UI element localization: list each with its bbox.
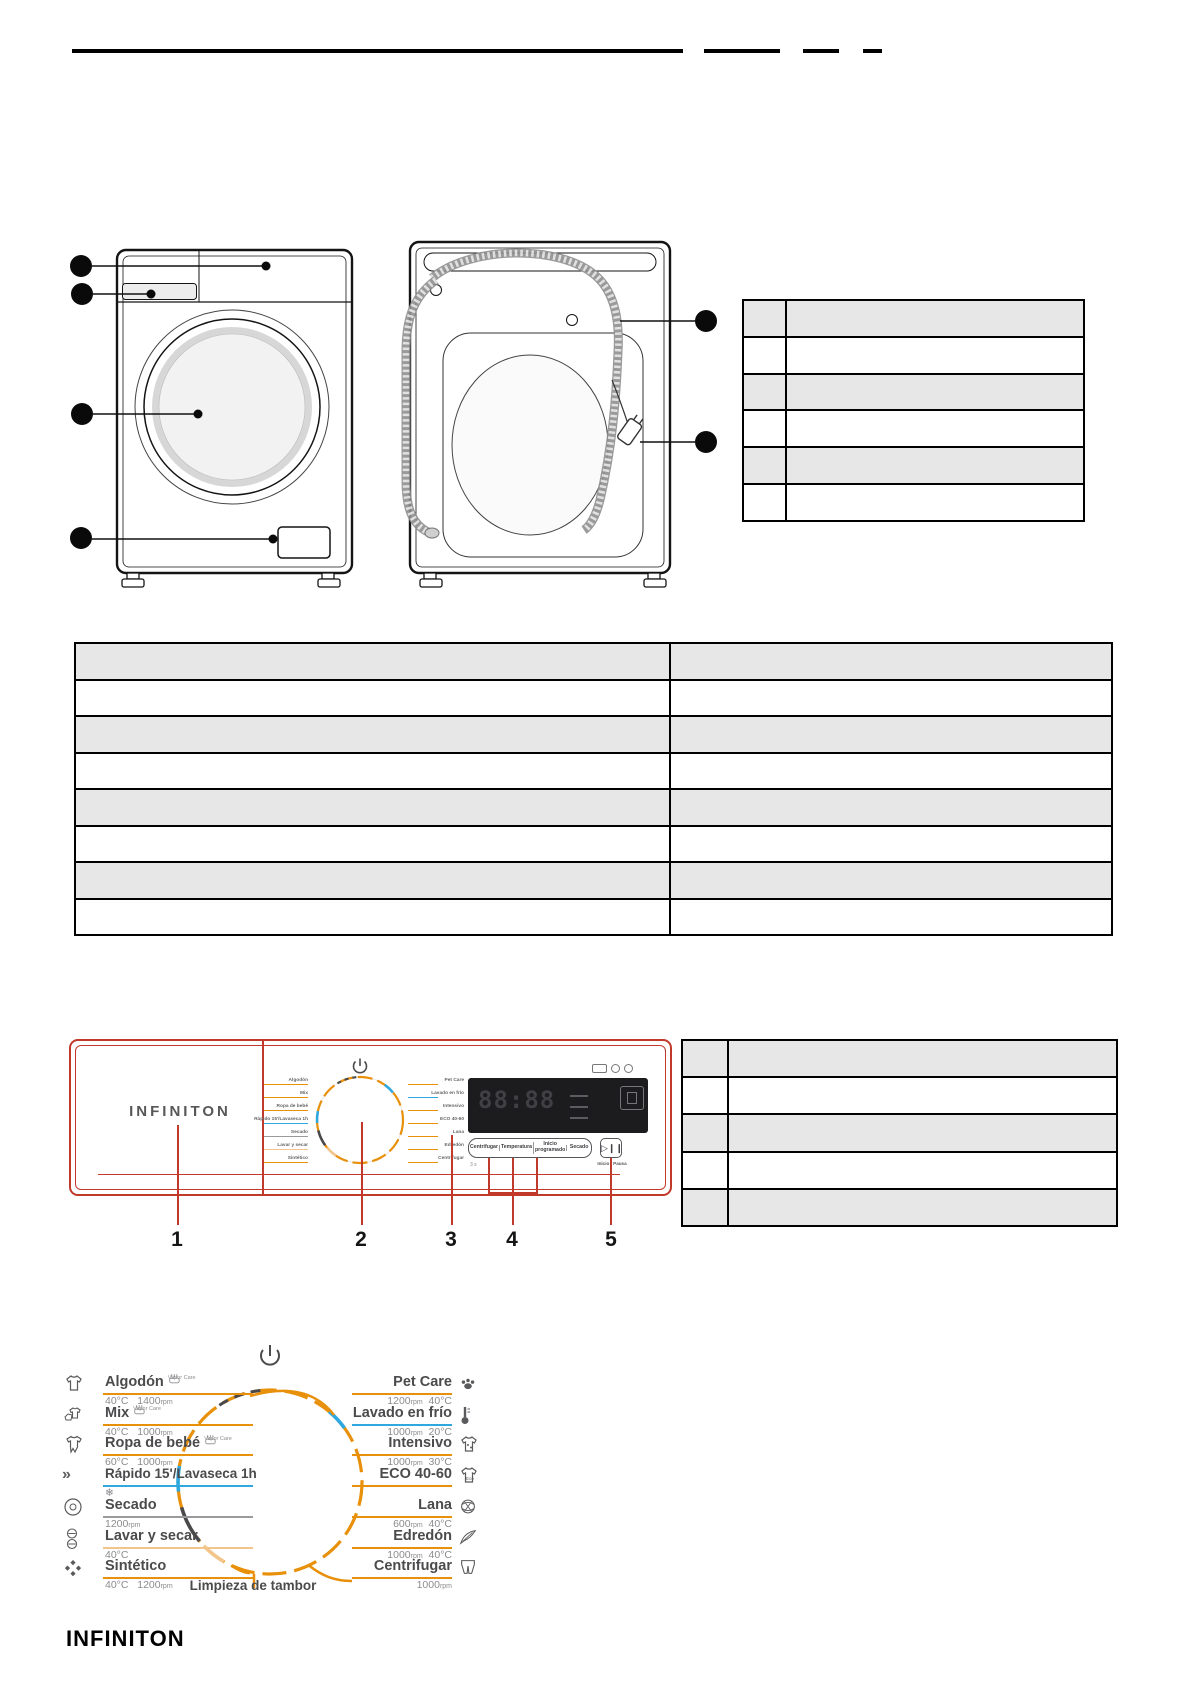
- back-view-parts-table: [742, 299, 1085, 522]
- table-row: [744, 301, 1083, 336]
- leader-line-4c: [536, 1158, 538, 1192]
- callout-bullet: [71, 283, 93, 305]
- spin-button[interactable]: Centrifugar: [469, 1145, 499, 1151]
- detergent-drawer: [123, 284, 197, 300]
- power-icon: [261, 1345, 279, 1365]
- panel-dial-label: ECO 40-60: [408, 1117, 464, 1130]
- panel-callout-1: 1: [164, 1228, 190, 1252]
- power-icon: [354, 1059, 367, 1073]
- program-rapido: » Rápido 15'/Lavaseca 1h ❄: [60, 1466, 260, 1496]
- table-row: [744, 409, 1083, 446]
- program-mix: Mix Vapor Care 40°C 1000rpm: [60, 1405, 260, 1435]
- table-row: [76, 788, 1111, 825]
- header-rule-3: [803, 49, 839, 53]
- footer-brand-logo: INFINITON: [66, 1626, 185, 1652]
- leader-line-1: [177, 1125, 179, 1225]
- machine-diagrams: [40, 230, 740, 600]
- program-lavar-y-secar: Lavar y secar 40°C: [60, 1528, 260, 1558]
- indicator-icon: [570, 1095, 588, 1097]
- panel-dial-label: Intensivo: [408, 1104, 464, 1117]
- table-row: [744, 483, 1083, 520]
- start-pause-button[interactable]: ▷❙❙: [600, 1138, 622, 1158]
- back-feet: [420, 573, 666, 587]
- table-column-divider: [669, 644, 671, 934]
- panel-callout-5: 5: [598, 1228, 624, 1252]
- table-row: [76, 825, 1111, 862]
- manual-page: INFINITON Algodón Mix Ropa de bebé Rápid…: [0, 0, 1191, 1684]
- vapor-care-icon: Vapor Care: [204, 1437, 232, 1443]
- leader-line-2: [361, 1122, 363, 1225]
- program-dial[interactable]: [312, 1058, 408, 1168]
- table-row: [744, 446, 1083, 483]
- leader-line-3: [451, 1135, 453, 1225]
- seven-segment-display: 88:88: [478, 1086, 555, 1114]
- panel-dial-label: Ropa de bebé: [210, 1104, 308, 1117]
- table-row: [76, 715, 1111, 752]
- callout-bullet: [70, 527, 92, 549]
- panel-callout-4: 4: [499, 1228, 525, 1252]
- program-pet-care: Pet Care 1200rpm 40°C: [300, 1374, 480, 1404]
- leader-line-4b: [512, 1158, 514, 1192]
- svg-text:Eco: Eco: [466, 1476, 474, 1481]
- bluetooth-badge-icon: [592, 1064, 607, 1073]
- program-ropa-de-bebe: Ropa de bebé Vapor Care 60°C 1000rpm: [60, 1435, 260, 1465]
- program-intensivo: Intensivo 1000rpm 30°C: [300, 1435, 480, 1465]
- table-row: [683, 1076, 1116, 1113]
- delay-start-button[interactable]: Inicio programado: [533, 1142, 566, 1153]
- table-row: [683, 1151, 1116, 1188]
- front-feet: [122, 573, 340, 587]
- panel-dial-label: Rápido 15'/Lavaseca 1h: [210, 1117, 308, 1130]
- program-algodon: Algodón Vapor Care 40°C 1400rpm: [60, 1374, 260, 1404]
- drum-clean-label: Limpieza de tambor: [153, 1578, 353, 1593]
- start-pause-label: Inicio / Pausa: [588, 1161, 636, 1166]
- table-row: [744, 336, 1083, 373]
- badge-icon: [611, 1064, 620, 1073]
- header-rule-4: [863, 49, 882, 53]
- callout-bullet: [695, 310, 717, 332]
- panel-dial-label: Secado: [210, 1130, 308, 1143]
- front-view-figure: [117, 250, 352, 587]
- program-eco-40-60: ECO 40-60 Eco: [300, 1466, 480, 1496]
- dispenser-indicator-icon: [620, 1086, 644, 1110]
- table-row: [76, 679, 1111, 716]
- leader-line-4: [512, 1192, 514, 1225]
- table-column-divider: [727, 1041, 729, 1225]
- panel-dial-label: Lana: [408, 1130, 464, 1143]
- program-underline: [352, 1485, 452, 1488]
- callout-bullet: [70, 255, 92, 277]
- hold-note: 3 s: [470, 1162, 477, 1168]
- table-row: [76, 644, 1111, 679]
- table-row: [76, 861, 1111, 898]
- program-secado: Secado 1200rpm: [60, 1497, 260, 1527]
- certification-badges: [592, 1064, 633, 1073]
- program-lavado-en-frio: Lavado en frío 1000rpm 20°C: [300, 1405, 480, 1435]
- vapor-care-icon: Vapor Care: [168, 1376, 196, 1382]
- indicator-icon: [570, 1106, 588, 1108]
- panel-dial-label: Sintético: [210, 1156, 308, 1169]
- table-row: [76, 752, 1111, 789]
- indicator-icon: [570, 1117, 588, 1119]
- badge-icon: [624, 1064, 633, 1073]
- leader-line-5: [610, 1158, 612, 1225]
- panel-dial-label: Lavar y secar: [210, 1143, 308, 1156]
- panel-dial-label: Mix: [210, 1091, 308, 1104]
- table-column-divider: [785, 301, 787, 520]
- panel-dial-label: Pet Care: [408, 1078, 464, 1091]
- callout-bullet: [71, 403, 93, 425]
- table-row: [683, 1188, 1116, 1225]
- dry-button[interactable]: Secado: [566, 1145, 591, 1151]
- panel-dial-label: Centrifugar: [408, 1156, 464, 1169]
- panel-parts-table: [681, 1039, 1118, 1227]
- panel-callout-3: 3: [438, 1228, 464, 1252]
- vapor-care-icon: Vapor Care: [133, 1407, 161, 1413]
- table-row: [744, 373, 1083, 410]
- panel-dial-label: Algodón: [210, 1078, 308, 1091]
- header-rule-long: [72, 49, 683, 53]
- table-row: [683, 1113, 1116, 1150]
- panel-dial-label: Edredón: [408, 1143, 464, 1156]
- header-rule-2: [704, 49, 780, 53]
- panel-callout-2: 2: [348, 1228, 374, 1252]
- panel-dial-label: Lavado en frío: [408, 1091, 464, 1104]
- option-buttons: Centrifugar Temperatura Inicio programad…: [468, 1138, 592, 1158]
- program-lana: Lana 600rpm 40°C: [300, 1497, 480, 1527]
- spec-table: [74, 642, 1113, 936]
- temperature-button[interactable]: Temperatura: [499, 1145, 533, 1151]
- program-edredon: Edredón 1000rpm 40°C: [300, 1528, 480, 1558]
- back-view-figure: [406, 242, 670, 587]
- callout-bullet: [695, 431, 717, 453]
- program-underline: [103, 1485, 253, 1488]
- display-indicator-icons: [570, 1086, 588, 1119]
- fast-forward-icon: »: [62, 1466, 71, 1484]
- leader-line-4a: [488, 1158, 490, 1192]
- table-row: [683, 1041, 1116, 1076]
- filter-door: [278, 527, 330, 558]
- table-row: [76, 898, 1111, 935]
- display-screen: 88:88: [468, 1078, 648, 1133]
